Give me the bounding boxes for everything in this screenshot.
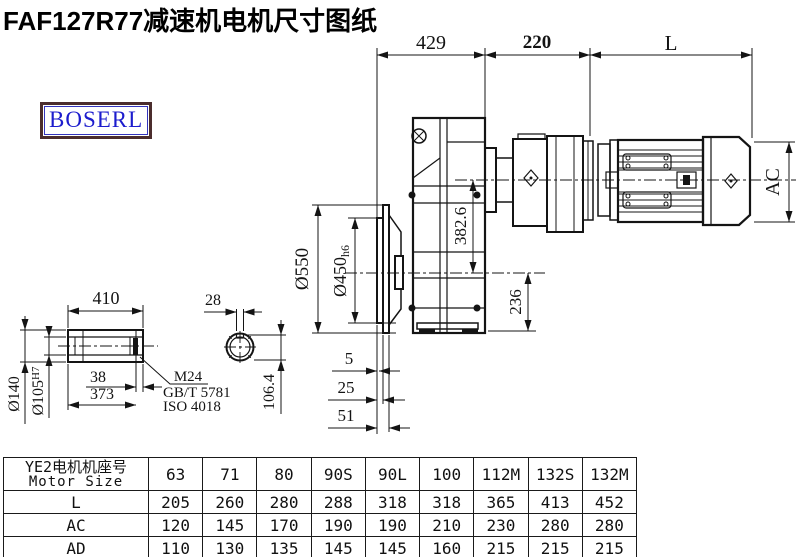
col-header: 90L — [365, 458, 419, 491]
dim-106-4: 106.4 — [261, 374, 278, 410]
table-row-L: L 205 260 280 288 318 318 365 413 452 — [4, 491, 637, 514]
dim-d450h6: Ø450h6 — [330, 245, 352, 297]
cell: 145 — [311, 537, 365, 557]
cell: 288 — [311, 491, 365, 514]
col-header: 63 — [149, 458, 203, 491]
dim-38: 38 — [90, 369, 106, 386]
gearbox-housing — [409, 118, 486, 333]
cell: 260 — [203, 491, 257, 514]
boserl-logo-text: BOSERL — [49, 107, 143, 132]
main-dimensions: Ø550 Ø450h6 382.6 236 AC — [292, 142, 795, 333]
dim-d105h7: Ø105H7 — [30, 366, 47, 416]
motor — [598, 137, 750, 225]
cell: 205 — [149, 491, 203, 514]
cell: 318 — [365, 491, 419, 514]
col-header: 132S — [528, 458, 582, 491]
row-label: L — [4, 491, 149, 514]
cell: 318 — [420, 491, 474, 514]
motor-size-header-cell: YE2电机机座号 Motor Size — [4, 458, 149, 491]
table-row-AD: AD 110 130 135 145 145 160 215 215 215 — [4, 537, 637, 557]
col-header: 80 — [257, 458, 311, 491]
hollow-shaft-detail: 410 38 373 Ø140 Ø105H7 M24 GB/T 5781 ISO… — [6, 288, 231, 424]
cell: 145 — [365, 537, 419, 557]
cell: 280 — [528, 514, 582, 537]
cell: 110 — [149, 537, 203, 557]
leader-m24: M24 — [174, 369, 203, 385]
cell: 413 — [528, 491, 582, 514]
cell: 230 — [474, 514, 528, 537]
table-row-AC: AC 120 145 170 190 190 210 230 280 280 — [4, 514, 637, 537]
centerlines — [58, 180, 796, 363]
cell: 190 — [365, 514, 419, 537]
col-header: 132M — [582, 458, 636, 491]
row-label: AC — [4, 514, 149, 537]
row-label: AD — [4, 537, 149, 557]
leader-iso: ISO 4018 — [163, 399, 221, 415]
cell: 452 — [582, 491, 636, 514]
dim-d550: Ø550 — [292, 248, 313, 290]
cell: 215 — [528, 537, 582, 557]
dim-5: 5 — [345, 349, 354, 368]
dim-220: 220 — [523, 32, 552, 53]
col-header: 90S — [311, 458, 365, 491]
flange-offset-dimensions: 5 25 51 — [328, 325, 410, 434]
dim-51: 51 — [338, 406, 355, 425]
cell: 210 — [420, 514, 474, 537]
dim-AC: AC — [762, 168, 784, 196]
boserl-logo: BOSERL — [40, 102, 152, 139]
cell: 170 — [257, 514, 311, 537]
header-line2: Motor Size — [4, 475, 148, 490]
dim-28: 28 — [205, 292, 221, 309]
top-dimension-chain: 429 220 L — [377, 31, 752, 218]
drawing-sheet: FAF127R77减速机电机尺寸图纸 BOSERL — [0, 0, 800, 557]
motor-size-table: YE2电机机座号 Motor Size 63 71 80 90S 90L 100… — [3, 457, 637, 557]
dim-d140: Ø140 — [6, 376, 23, 412]
motor-adapter — [485, 134, 593, 232]
col-header: 112M — [474, 458, 528, 491]
col-header: 100 — [420, 458, 474, 491]
cell: 135 — [257, 537, 311, 557]
table-header-row: YE2电机机座号 Motor Size 63 71 80 90S 90L 100… — [4, 458, 637, 491]
cell: 215 — [582, 537, 636, 557]
cell: 160 — [420, 537, 474, 557]
dim-L: L — [665, 31, 678, 55]
dim-410: 410 — [93, 288, 120, 308]
cell: 130 — [203, 537, 257, 557]
dim-429: 429 — [416, 32, 446, 54]
col-header: 71 — [203, 458, 257, 491]
cell: 365 — [474, 491, 528, 514]
cell: 215 — [474, 537, 528, 557]
cell: 280 — [257, 491, 311, 514]
dim-25: 25 — [338, 378, 355, 397]
cell: 120 — [149, 514, 203, 537]
header-line1: YE2电机机座号 — [4, 459, 148, 475]
dim-236: 236 — [506, 289, 525, 315]
cell: 280 — [582, 514, 636, 537]
cell: 145 — [203, 514, 257, 537]
dim-373: 373 — [90, 386, 114, 403]
dim-382-6: 382.6 — [451, 207, 470, 245]
output-flange — [377, 205, 403, 333]
cell: 190 — [311, 514, 365, 537]
page-title: FAF127R77减速机电机尺寸图纸 — [3, 1, 377, 38]
